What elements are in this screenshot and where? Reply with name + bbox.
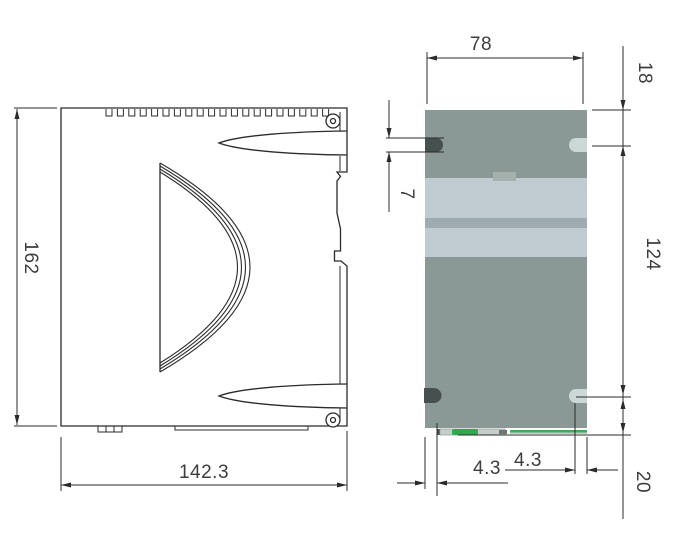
enclosure-outline [61, 108, 347, 426]
bottom-screw-inner [331, 418, 336, 423]
arrow-slot-top [387, 128, 392, 138]
top-left-mount-slot [425, 138, 443, 152]
bottom-latch-tab [219, 384, 347, 408]
bottom-right-mount-slot [569, 389, 587, 403]
ext-lines-left-inset [425, 423, 437, 496]
arrow-height-bottom [15, 415, 20, 425]
label-hole-spacing-124: 124 [642, 237, 663, 270]
arrow-width-right [337, 483, 347, 488]
arrow-slot-bottom [387, 152, 392, 162]
drawing-svg: 162 142.3 78 7 18 124 20 4.3 4.3 [0, 0, 693, 538]
arrow-20-bottom [621, 423, 626, 433]
ext-lines-front-width [427, 52, 583, 104]
top-screw-inner [331, 119, 336, 124]
label-left-inset-4-3: 4.3 [473, 458, 501, 479]
mid-band [425, 218, 587, 228]
arrow-height-top [15, 109, 20, 119]
label-width-142-3: 142.3 [179, 462, 229, 483]
label-bottom-offset-20: 20 [632, 471, 653, 493]
top-right-mount-slot [569, 138, 587, 152]
bottom-left-mount-slot [424, 388, 442, 403]
label-front-width-78: 78 [470, 34, 492, 55]
light-band-lower [425, 228, 587, 257]
vent-slots [106, 109, 329, 116]
front-view [424, 110, 587, 435]
arrow-right-inset-b [587, 468, 597, 473]
arrow-left-inset-b [437, 481, 447, 486]
top-latch-tab [219, 131, 347, 155]
arrow-20-top [621, 399, 626, 409]
label-right-inset-4-3: 4.3 [514, 450, 542, 471]
dimension-drawing: 162 142.3 78 7 18 124 20 4.3 4.3 [0, 0, 693, 538]
light-band-upper [425, 178, 587, 218]
din-clip-foot [98, 426, 122, 432]
bottom-grey-tick [499, 430, 507, 434]
arrow-front-width-left [427, 56, 437, 61]
arrow-right-inset-a [565, 468, 575, 473]
front-body [425, 110, 587, 428]
arrow-18-top [621, 100, 626, 110]
arrow-left-inset-a [415, 481, 425, 486]
center-tab [493, 172, 516, 181]
arrow-width-left [61, 483, 71, 488]
handle-arcs [160, 163, 250, 372]
side-view [61, 108, 347, 432]
arrow-front-width-right [573, 56, 583, 61]
label-height-162: 162 [20, 241, 41, 274]
arrow-18-bottom [621, 146, 626, 156]
green-terminal-block [452, 429, 478, 435]
arrow-124-bottom [621, 385, 626, 395]
label-top-offset-18: 18 [634, 62, 655, 84]
label-slot-height-7: 7 [396, 188, 417, 199]
